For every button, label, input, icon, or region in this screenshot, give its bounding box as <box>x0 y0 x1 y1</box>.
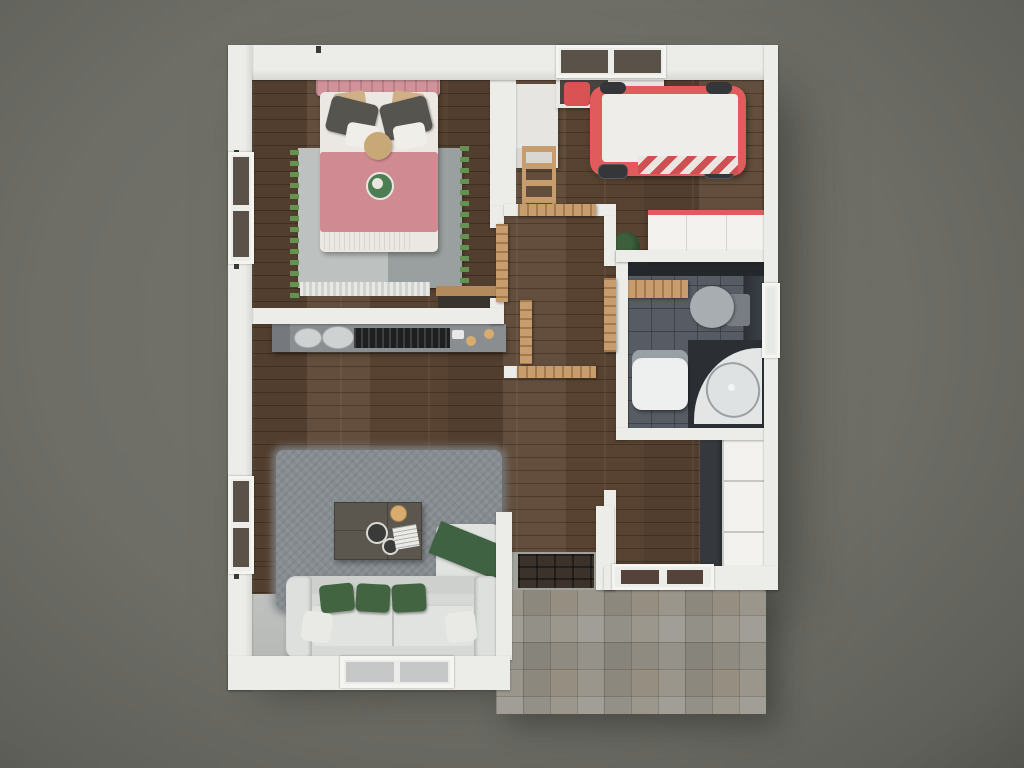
bathroom-towel-shelf <box>626 280 688 298</box>
front-door <box>612 564 714 590</box>
kitchen-cabinet-left <box>272 324 290 352</box>
wall-bath-top <box>616 250 764 262</box>
rug-fringe-left <box>290 150 299 300</box>
wall-porch-left-stub <box>496 512 512 660</box>
bathroom-window-pane <box>767 288 775 353</box>
front-door-pane-left <box>621 570 659 584</box>
living-window-bottom-pane-right <box>400 662 448 682</box>
entry-closet <box>722 430 766 584</box>
open-door-kids-room <box>518 204 596 216</box>
white-magazine <box>392 524 419 550</box>
wall-outer-top <box>228 45 778 80</box>
wall-corridor-door-stub <box>504 366 518 378</box>
counter-dish <box>452 330 464 339</box>
kids-wardrobe-red-trim <box>648 210 766 215</box>
car-bed-wheel-tl <box>600 82 626 94</box>
car-bed-wheel-tr <box>706 82 732 94</box>
living-window-pane-top <box>233 481 249 522</box>
bed-plate-flower <box>372 178 383 189</box>
open-door-living-2 <box>517 366 596 378</box>
kids-window-top <box>556 45 666 78</box>
washbasin <box>632 358 688 410</box>
living-window-pane-bottom <box>233 528 249 567</box>
bathtub-faucet <box>728 384 735 391</box>
gold-bowl <box>390 505 407 522</box>
kids-window-pane-right <box>614 50 661 73</box>
bedroom-window-pane-bottom <box>233 211 249 257</box>
floorplan-render <box>0 0 1024 768</box>
sofa-pillow-white-left <box>300 610 334 644</box>
rug-fringe-right <box>460 146 469 286</box>
rug-fringe-bottom <box>300 282 430 296</box>
toilet-bowl <box>690 286 734 328</box>
kids-ladder-chair <box>522 146 556 212</box>
sofa-pillow-white-right <box>444 610 477 643</box>
bedroom-dresser-top <box>436 286 500 296</box>
wall-outer-left <box>228 45 252 690</box>
wall-corridor-bath <box>604 216 616 266</box>
bed-round-cushion <box>364 132 392 160</box>
open-door-bathroom <box>604 278 616 352</box>
bathroom-top-shadow <box>628 262 764 276</box>
living-window-bottom <box>340 656 454 688</box>
stove-grill <box>354 328 450 348</box>
sofa-pillow-green-2 <box>355 583 390 613</box>
wall-joint-mark <box>316 46 321 53</box>
open-door-living-1 <box>520 300 532 364</box>
open-door-bedroom <box>496 224 508 302</box>
wall-bedroom-kids-divider <box>490 80 516 206</box>
entry-dark-panel <box>700 437 724 567</box>
bathroom-window <box>762 283 780 358</box>
bedroom-window-pane-top <box>233 157 249 205</box>
car-bed-wheel-bl <box>598 164 628 179</box>
counter-knob-1 <box>466 336 476 346</box>
door-mat <box>518 554 594 588</box>
kids-red-chair <box>564 82 590 106</box>
car-bed-striped-blanket <box>638 156 738 174</box>
wall-bedroom-bottom <box>252 308 504 324</box>
living-window-bottom-pane-left <box>346 662 394 682</box>
car-bed-mattress <box>602 94 738 162</box>
sofa-pillow-green-3 <box>391 583 426 613</box>
front-door-pane-right <box>667 570 703 584</box>
sofa-pillow-green-1 <box>319 582 356 613</box>
counter-knob-2 <box>484 329 494 339</box>
kids-window-pane-left <box>561 50 608 73</box>
wall-bath-bottom <box>616 428 764 440</box>
living-window-left <box>228 476 254 574</box>
sink-basin-1 <box>294 328 322 348</box>
sink-basin-2 <box>322 326 354 349</box>
bedroom-window <box>228 152 254 264</box>
patio-floor <box>496 588 766 714</box>
wall-bath-left <box>616 250 628 440</box>
